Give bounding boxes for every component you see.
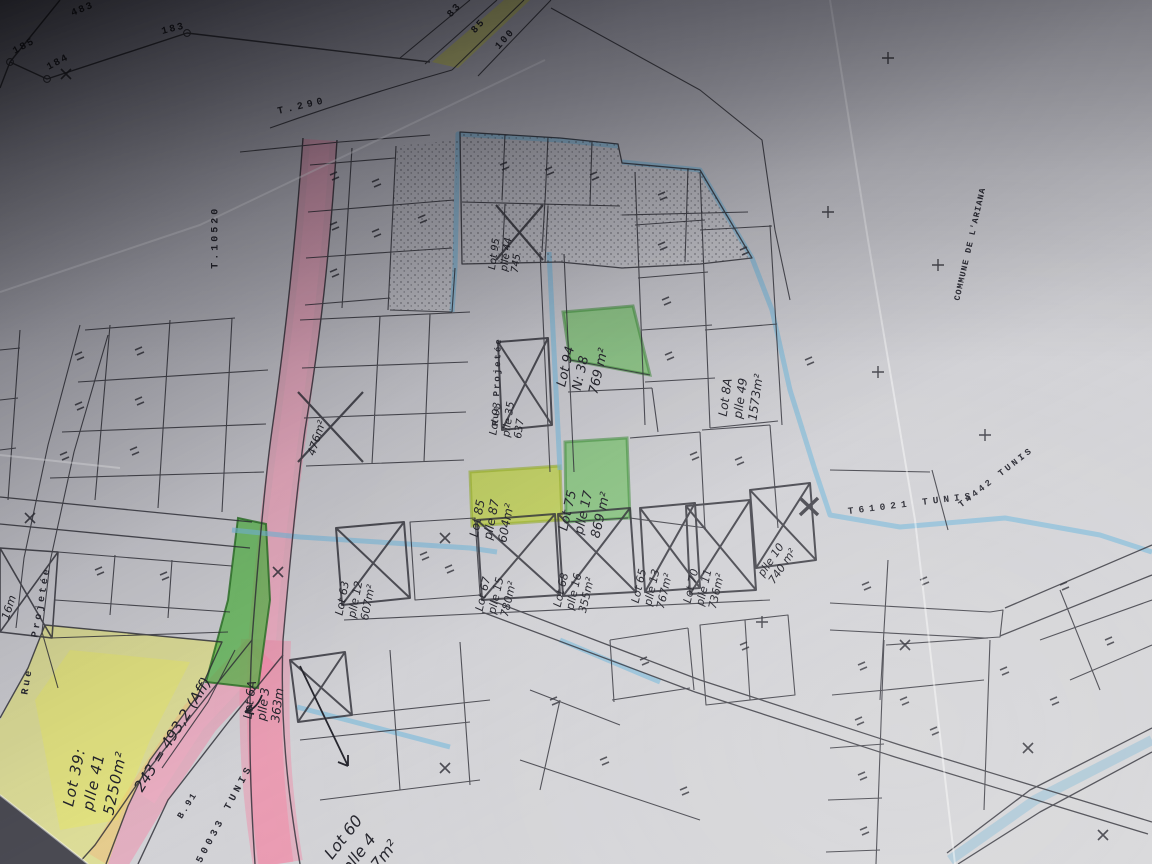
map-photo: Lot 39:plle 415250m² 243 = 493,2 (Aff) B… (0, 0, 1152, 864)
lot-8a-label: Lot 8Aplle 491573m² (716, 369, 767, 422)
lot-85-label: Lot 85plle 87604m² (467, 495, 517, 543)
lot-63-label: Lot 63plle 12607m² (333, 577, 379, 621)
lot-6a-label: Lot 6Aplle 3363m (241, 680, 287, 723)
lot-95-label: Lot 95plle 44745 (487, 235, 526, 273)
t10520-label: T.10520 (209, 206, 223, 269)
